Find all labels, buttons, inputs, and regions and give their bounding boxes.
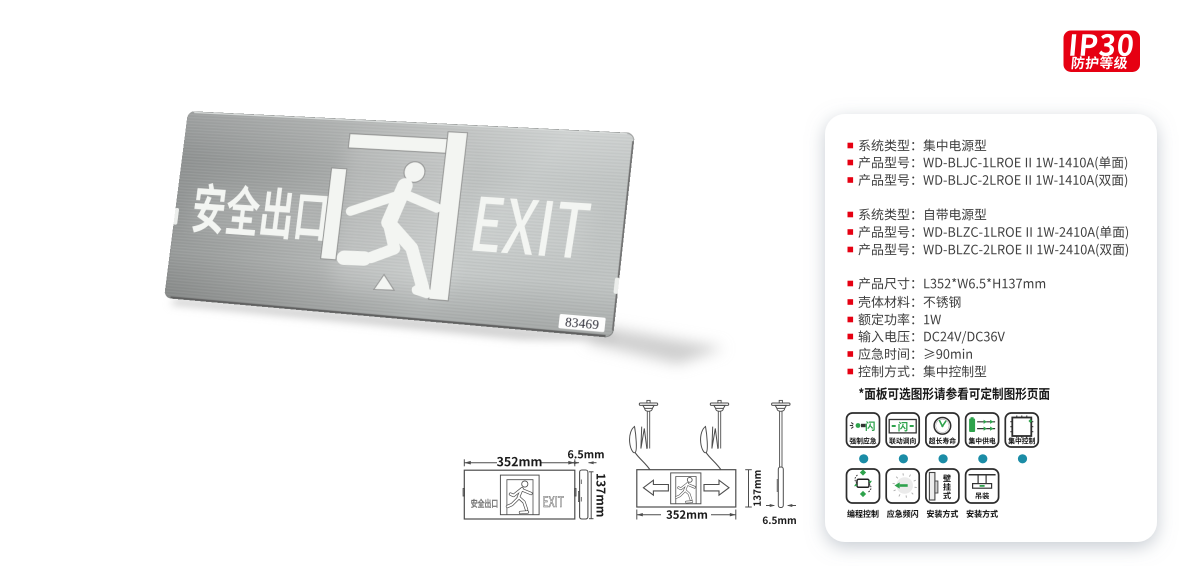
svg-text:83469: 83469: [564, 316, 600, 333]
